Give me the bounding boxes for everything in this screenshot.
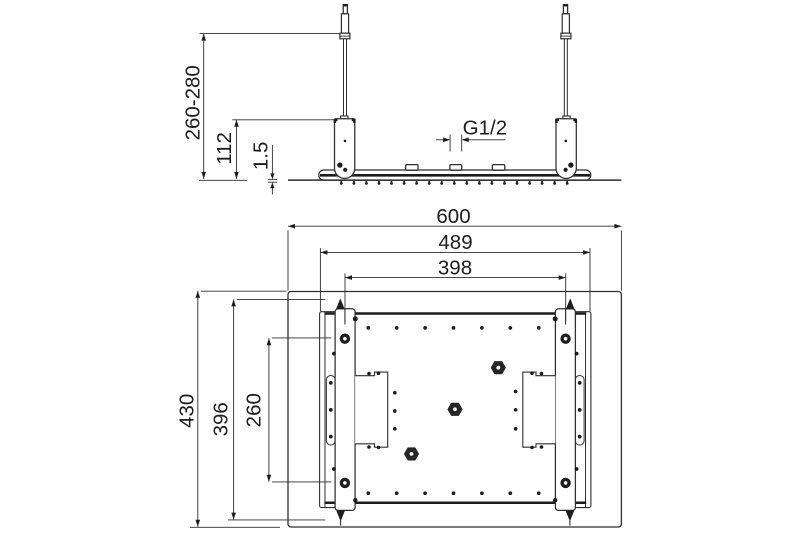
svg-text:260: 260 — [242, 393, 265, 427]
svg-text:430: 430 — [175, 394, 198, 428]
svg-text:396: 396 — [210, 402, 233, 436]
svg-text:260-280: 260-280 — [182, 65, 205, 140]
svg-text:G1/2: G1/2 — [463, 116, 507, 139]
svg-text:112: 112 — [213, 132, 236, 165]
svg-text:398: 398 — [438, 257, 472, 280]
svg-text:489: 489 — [438, 231, 472, 254]
svg-text:600: 600 — [436, 205, 470, 228]
svg-text:1.5: 1.5 — [249, 142, 272, 171]
